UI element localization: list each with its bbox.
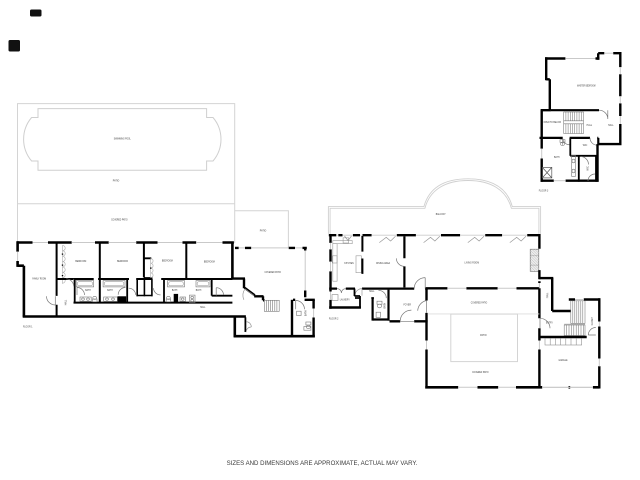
svg-text:CLOSET: CLOSET — [590, 317, 594, 325]
svg-text:BATH: BATH — [196, 288, 202, 292]
svg-text:ENTRY: ENTRY — [546, 321, 553, 325]
svg-text:COVERED PATIO: COVERED PATIO — [111, 218, 128, 222]
svg-text:BATH: BATH — [107, 288, 113, 292]
svg-text:COVERED PATIO: COVERED PATIO — [264, 270, 281, 274]
svg-text:GARAGE: GARAGE — [559, 358, 568, 362]
svg-text:HALL: HALL — [369, 289, 375, 293]
svg-text:SIZES AND DIMENSIONS ARE APPRO: SIZES AND DIMENSIONS ARE APPROXIMATE, AC… — [227, 460, 418, 467]
svg-text:MASTER BEDROOM: MASTER BEDROOM — [577, 83, 596, 87]
svg-text:DINING AREA: DINING AREA — [376, 261, 391, 265]
svg-text:FAMILY ROOM: FAMILY ROOM — [32, 277, 46, 281]
svg-text:BATH: BATH — [554, 155, 560, 159]
svg-text:PATIO: PATIO — [113, 179, 120, 183]
svg-text:BATH: BATH — [382, 303, 386, 309]
svg-text:LAUNDRY: LAUNDRY — [340, 297, 350, 301]
svg-text:HALL: HALL — [200, 305, 206, 309]
svg-text:FLOOR 2: FLOOR 2 — [329, 316, 339, 320]
svg-text:FLOOR 3: FLOOR 3 — [539, 189, 549, 193]
svg-text:FOYER: FOYER — [403, 302, 411, 306]
svg-text:PATIO: PATIO — [480, 333, 487, 337]
svg-text:WIC: WIC — [583, 143, 588, 147]
svg-text:BALCONY: BALCONY — [436, 212, 446, 216]
svg-text:HALL: HALL — [64, 300, 68, 306]
svg-text:HALL: HALL — [587, 123, 593, 127]
svg-text:BATH: BATH — [303, 310, 307, 316]
svg-text:KITCHEN: KITCHEN — [344, 261, 354, 265]
svg-text:PATIO: PATIO — [260, 229, 267, 233]
svg-text:HALL: HALL — [545, 292, 549, 298]
svg-text:COVERED PATIO: COVERED PATIO — [472, 370, 489, 374]
svg-text:SWIMMING POOL: SWIMMING POOL — [114, 137, 131, 141]
svg-text:BEDROOM: BEDROOM — [75, 259, 86, 263]
svg-text:BEDROOM: BEDROOM — [117, 259, 128, 263]
svg-text:WIC: WIC — [585, 166, 589, 171]
svg-text:LIVING ROOM: LIVING ROOM — [465, 260, 480, 264]
svg-text:BATH: BATH — [172, 288, 178, 292]
svg-text:BEDROOM: BEDROOM — [204, 260, 215, 264]
svg-text:BATH: BATH — [85, 288, 91, 292]
svg-text:FLOOR 1: FLOOR 1 — [23, 325, 33, 329]
svg-text:OPEN TO BELOW: OPEN TO BELOW — [543, 120, 561, 124]
svg-text:COVERED PATIO: COVERED PATIO — [471, 300, 488, 304]
svg-text:HALL: HALL — [608, 123, 614, 127]
svg-text:BEDROOM: BEDROOM — [162, 259, 173, 263]
